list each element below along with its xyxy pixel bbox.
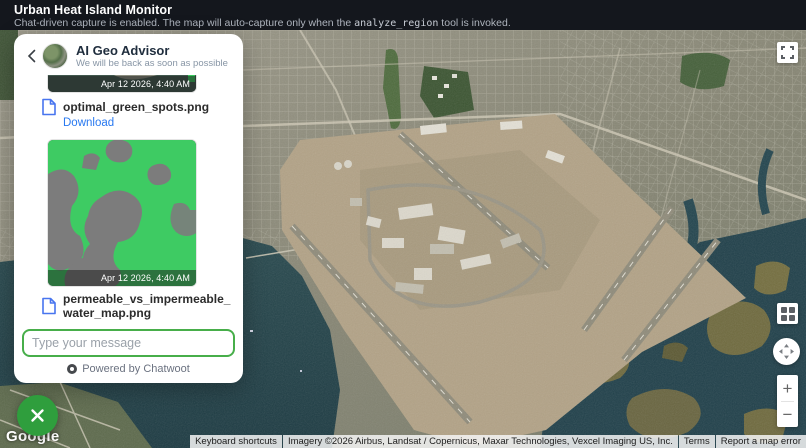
chat-header-text: AI Geo Advisor We will be back as soon a… <box>76 43 228 69</box>
chat-widget: AI Geo Advisor We will be back as soon a… <box>14 34 243 383</box>
zoom-out-button[interactable]: − <box>777 402 798 427</box>
chat-subtitle: We will be back as soon as possible <box>76 58 228 69</box>
terms-link[interactable]: Terms <box>679 435 715 448</box>
page-subtitle: Chat-driven capture is enabled. The map … <box>14 17 792 30</box>
imagery-attribution: Imagery ©2026 Airbus, Landsat / Copernic… <box>283 435 678 448</box>
powered-by-label[interactable]: Powered by Chatwoot <box>82 363 190 375</box>
close-icon <box>30 408 45 423</box>
app-window: Urban Heat Island Monitor Chat-driven ca… <box>0 0 806 448</box>
message-image-optimal-green-spots[interactable]: Apr 12 2026, 4:40 AM <box>47 75 197 93</box>
app-header: Urban Heat Island Monitor Chat-driven ca… <box>0 0 806 30</box>
download-link[interactable]: Download <box>63 117 231 129</box>
message-input[interactable] <box>22 329 235 357</box>
message-image-permeable-map[interactable]: Apr 12 2026, 4:40 AM <box>47 139 197 287</box>
zoom-control: + − <box>777 375 798 427</box>
page-title: Urban Heat Island Monitor <box>14 3 792 17</box>
map-layers-button[interactable] <box>777 303 798 324</box>
zoom-in-button[interactable]: + <box>777 376 798 401</box>
attachment-filename: optimal_green_spots.png <box>63 100 231 114</box>
tool-name-code: analyze_region <box>354 18 438 29</box>
grid-icon <box>781 307 795 321</box>
attachment-row: permeable_vs_impermeable_water_map.png <box>41 292 231 320</box>
back-button[interactable] <box>22 47 40 65</box>
chat-messages[interactable]: Apr 12 2026, 4:40 AM optimal_green_spots… <box>14 75 243 322</box>
attachment-row: optimal_green_spots.png <box>41 98 231 116</box>
attachment-filename: permeable_vs_impermeable_water_map.png <box>63 292 231 320</box>
chevron-left-icon <box>27 49 36 63</box>
report-map-error-link[interactable]: Report a map error <box>716 435 806 448</box>
file-icon <box>41 297 57 315</box>
pan-arrows-icon <box>777 342 796 361</box>
image-timestamp: Apr 12 2026, 4:40 AM <box>48 76 196 92</box>
chat-title: AI Geo Advisor <box>76 43 228 58</box>
permeable-map-thumbnail <box>48 140 197 287</box>
chat-footer: Powered by Chatwoot <box>14 357 243 383</box>
chat-input-wrap <box>22 329 235 357</box>
fullscreen-button[interactable] <box>777 42 798 63</box>
keyboard-shortcuts-link[interactable]: Keyboard shortcuts <box>190 435 282 448</box>
map-attribution-bar: Keyboard shortcuts Imagery ©2026 Airbus,… <box>190 435 806 448</box>
chat-launcher-button[interactable] <box>17 395 58 436</box>
pan-control-button[interactable] <box>773 338 800 365</box>
chat-header: AI Geo Advisor We will be back as soon a… <box>14 34 243 75</box>
image-timestamp: Apr 12 2026, 4:40 AM <box>48 270 196 286</box>
fullscreen-icon <box>781 46 794 59</box>
chatwoot-logo-icon <box>67 364 77 374</box>
avatar <box>42 43 68 69</box>
file-icon <box>41 98 57 116</box>
